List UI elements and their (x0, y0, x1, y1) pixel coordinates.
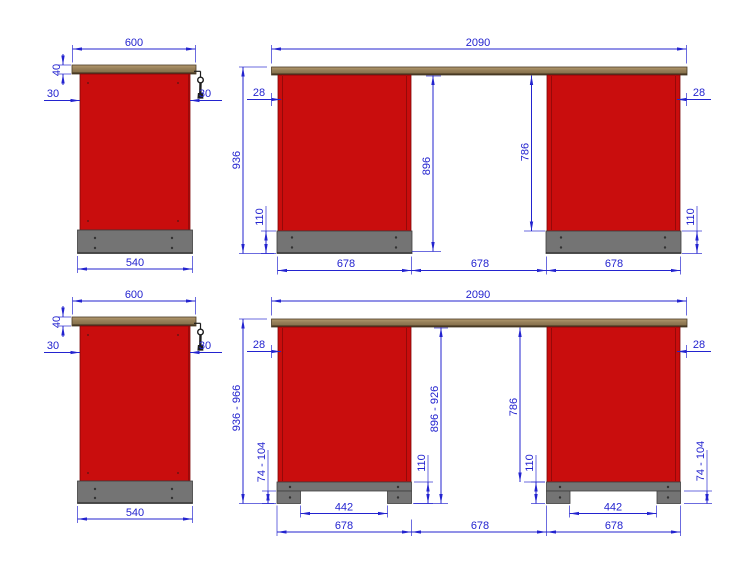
dim-label-height-786: 786 (508, 398, 520, 416)
dim-overhang-left: 30 (44, 340, 80, 353)
dim-plinth-left: 110 (414, 454, 433, 503)
base-right-adjustable (547, 482, 681, 504)
dim-label-overhang-right-30: 30 (199, 88, 211, 100)
dim-foot-right-range: 74 - 104 (684, 441, 712, 504)
dim-label-height-936-966: 936 - 966 (231, 385, 243, 431)
dim-label-height-896: 896 (421, 157, 433, 175)
cabinet-left (278, 75, 411, 231)
foot-right (388, 491, 412, 504)
dim-label-height-936: 936 (231, 151, 243, 169)
dim-label-notch-left-442: 442 (335, 502, 353, 514)
dim-label-width-600: 600 (125, 289, 143, 301)
base-left-adjustable (277, 482, 412, 504)
dim-base-width: 540 (78, 256, 193, 273)
dim-worktop-thickness: 40 (51, 54, 71, 85)
foot-left (547, 491, 571, 504)
dim-label-gap-678: 678 (471, 520, 489, 532)
dim-label-plinth-right-110: 110 (524, 454, 536, 472)
drawing-canvas: 600 40 30 30 540 (0, 0, 750, 579)
technical-drawing-workbench: 600 40 30 30 540 (0, 0, 750, 579)
dim-top-width: 600 (73, 289, 196, 315)
dim-offset-left: 28 (247, 87, 281, 106)
dim-label-notch-right-442: 442 (604, 502, 622, 514)
dim-label-base-540: 540 (126, 507, 144, 519)
dim-cabinet-height-range: 896 - 926 (413, 328, 448, 504)
dim-label-cabinet-left-678: 678 (335, 520, 353, 532)
dim-overhang-right: 30 (190, 88, 222, 101)
dim-plinth-right: 110 (682, 206, 702, 254)
dim-offset-right: 28 (677, 339, 711, 358)
cabinet-left (278, 327, 411, 482)
dim-label-offset-left-28: 28 (253, 339, 265, 351)
dim-label-width-600: 600 (125, 37, 143, 49)
dim-label-thickness-40: 40 (51, 316, 63, 328)
cabinet-right (547, 327, 680, 482)
dim-overhang-right: 30 (190, 340, 222, 353)
dim-label-offset-right-28: 28 (693, 87, 705, 99)
dim-label-width-2090: 2090 (466, 289, 490, 301)
dim-offset-left: 28 (247, 339, 281, 358)
plinth-right (546, 231, 681, 254)
dim-plinth-right: 110 (524, 454, 545, 503)
dim-worktop-thickness: 40 (51, 306, 71, 337)
cabinet-side-panel (80, 326, 190, 481)
cabinet-side-panel (80, 74, 190, 230)
dim-label-cabinet-right-678: 678 (605, 520, 623, 532)
view-side-top: 600 40 30 30 540 (44, 37, 222, 273)
dim-clearance-height: 786 (520, 76, 546, 232)
view-front-top: 2090 936 28 28 896 786 (231, 37, 711, 275)
dim-label-plinth-right-110: 110 (685, 208, 697, 226)
dim-label-gap-678: 678 (471, 258, 489, 270)
plinth-left (277, 231, 412, 254)
dim-foot-left-range: 74 - 104 (256, 442, 276, 504)
plinth-side (78, 230, 193, 254)
dim-label-overhang-left-30: 30 (47, 340, 59, 352)
dim-plinth-left: 110 (254, 206, 276, 254)
dim-label-plinth-left-110: 110 (254, 208, 266, 226)
view-side-bottom: 600 40 30 30 540 (44, 289, 222, 523)
dim-label-base-540: 540 (126, 257, 144, 269)
dim-top-width: 600 (73, 37, 196, 63)
dim-label-foot-right-74-104: 74 - 104 (695, 441, 707, 481)
dim-label-width-2090: 2090 (466, 37, 490, 49)
dim-notch-right: 442 (570, 502, 657, 518)
cabinet-right (547, 75, 680, 231)
dim-label-height-896-926: 896 - 926 (429, 386, 441, 432)
dim-label-height-786: 786 (520, 143, 532, 161)
dim-total-width: 2090 (272, 37, 687, 64)
dim-label-foot-left-74-104: 74 - 104 (256, 442, 268, 482)
dim-label-cabinet-left-678: 678 (337, 258, 355, 270)
dim-total-width: 2090 (272, 289, 687, 316)
foot-left (277, 491, 301, 504)
dim-base-width: 540 (78, 506, 193, 523)
dim-overhang-left: 30 (44, 88, 80, 101)
plinth-side (78, 481, 193, 504)
dim-notch-left: 442 (301, 502, 388, 518)
dim-offset-right: 28 (677, 87, 711, 106)
dim-label-cabinet-right-678: 678 (605, 258, 623, 270)
view-front-bottom: 2090 936 - 966 28 28 896 - 926 786 (231, 289, 712, 536)
dim-label-overhang-left-30: 30 (47, 88, 59, 100)
dim-cabinet-height: 896 (412, 76, 441, 252)
dim-label-thickness-40: 40 (51, 64, 63, 76)
dim-label-offset-left-28: 28 (253, 87, 265, 99)
dim-bottom-widths: 678 678 678 (278, 257, 681, 275)
dim-label-overhang-right-30: 30 (199, 340, 211, 352)
dim-label-offset-right-28: 28 (693, 339, 705, 351)
dim-label-plinth-left-110: 110 (416, 454, 428, 472)
